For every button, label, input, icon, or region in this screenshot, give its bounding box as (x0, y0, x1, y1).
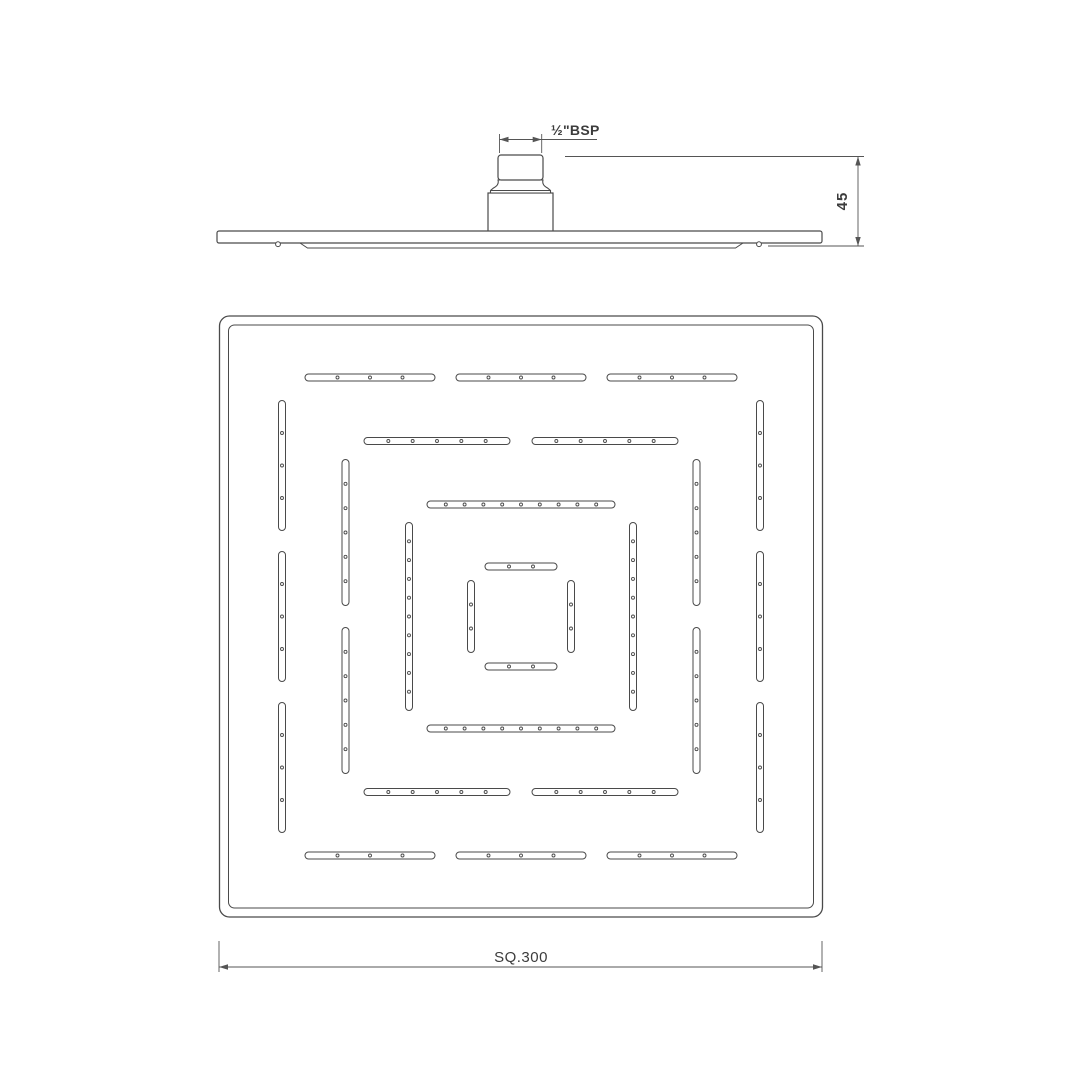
nozzle-hole (408, 540, 411, 543)
nozzle-hole (281, 583, 284, 586)
nozzle-hole (484, 791, 487, 794)
plate-outline (217, 231, 822, 243)
nozzle-hole (281, 497, 284, 500)
nozzle-hole (344, 675, 347, 678)
nozzle-hole (344, 507, 347, 510)
nozzle-hole (336, 854, 339, 857)
drawing-sheet: ½"BSP 45 SQ.300 (0, 0, 1080, 1080)
nozzle-hole (401, 376, 404, 379)
nozzle-hole (638, 376, 641, 379)
nozzle-hole (344, 555, 347, 558)
nozzle-hole (482, 727, 485, 730)
nozzle-hole (632, 690, 635, 693)
nozzle-hole (695, 723, 698, 726)
nozzle-hole (652, 440, 655, 443)
nozzle-hole (759, 734, 762, 737)
nozzle-hole (369, 854, 372, 857)
nozzle-hole (538, 503, 541, 506)
nozzle-slot (568, 581, 575, 653)
sq-arrow-left (219, 964, 228, 969)
nozzle-hole (501, 503, 504, 506)
nozzle-hole (281, 734, 284, 737)
nozzle-hole (520, 503, 523, 506)
nozzle-hole (408, 615, 411, 618)
nozzle-hole (408, 559, 411, 562)
nozzle-hole (595, 503, 598, 506)
technical-drawing: ½"BSP 45 SQ.300 (0, 0, 1080, 1080)
nozzle-hole (387, 791, 390, 794)
nozzle-hole (470, 603, 473, 606)
nozzle-hole (703, 854, 706, 857)
nozzle-hole (508, 665, 511, 668)
nozzle-hole (759, 432, 762, 435)
nozzle-hole (632, 653, 635, 656)
nozzle-hole (576, 727, 579, 730)
nozzle-hole (628, 440, 631, 443)
nozzle-hole (281, 766, 284, 769)
nozzle-hole (344, 650, 347, 653)
face-recess-lip (300, 243, 743, 248)
height-arrow-top (855, 157, 860, 166)
nozzle-hole (487, 854, 490, 857)
bsp-dimension-label: ½"BSP (551, 122, 600, 138)
nozzle-hole (281, 648, 284, 651)
nozzle-hole (759, 464, 762, 467)
nozzle-hole (695, 675, 698, 678)
plan-view-linework (220, 316, 823, 917)
nozzle-hole (436, 791, 439, 794)
nozzle-hole (408, 596, 411, 599)
nozzle-hole (408, 634, 411, 637)
nozzle-hole (408, 577, 411, 580)
sq-arrow-right (813, 964, 822, 969)
nozzle-hole (538, 727, 541, 730)
nozzle-slot (468, 581, 475, 653)
bsp-arrow-left (500, 137, 509, 142)
nozzle-hole (759, 766, 762, 769)
nozzle-hole (632, 559, 635, 562)
nozzle-slot (485, 663, 557, 670)
nozzle-hole (387, 440, 390, 443)
nozzle-hole (281, 464, 284, 467)
nozzle-hole (460, 440, 463, 443)
side-view-linework (217, 155, 822, 248)
nozzle-hole (344, 748, 347, 751)
nozzle-hole (570, 627, 573, 630)
nozzle-hole (695, 580, 698, 583)
nozzle-hole (652, 791, 655, 794)
nozzle-hole (632, 577, 635, 580)
nozzle-hole (501, 727, 504, 730)
nozzle-hole (487, 376, 490, 379)
nozzle-hole (695, 482, 698, 485)
nozzle-hole (632, 671, 635, 674)
connector-nipple (498, 155, 543, 180)
nozzle-hole (759, 583, 762, 586)
nozzle-hole (436, 440, 439, 443)
nozzle-hole (671, 376, 674, 379)
nozzle-hole (484, 440, 487, 443)
nozzle-hole (604, 440, 607, 443)
height-arrow-bottom (855, 237, 860, 246)
nozzle-hole (632, 596, 635, 599)
nozzle-hole (470, 627, 473, 630)
nozzle-hole (555, 440, 558, 443)
nozzle-hole (508, 565, 511, 568)
nozzle-hole (576, 503, 579, 506)
nozzle-hole (408, 653, 411, 656)
nozzle-hole (520, 854, 523, 857)
nozzle-hole (344, 482, 347, 485)
nozzle-hole (344, 531, 347, 534)
nozzle-slot (485, 563, 557, 570)
nozzle-hole (604, 791, 607, 794)
nozzle-hole (532, 565, 535, 568)
nozzle-hole (695, 555, 698, 558)
nozzle-dot (757, 242, 762, 247)
nozzle-hole (411, 791, 414, 794)
nozzle-hole (344, 723, 347, 726)
nozzle-hole (759, 648, 762, 651)
nozzle-hole (695, 650, 698, 653)
nozzle-hole (460, 791, 463, 794)
nozzle-hole (344, 699, 347, 702)
nozzle-hole (579, 440, 582, 443)
nozzle-hole (369, 376, 372, 379)
square-size-dimension-label: SQ.300 (494, 949, 548, 966)
nozzle-hole (463, 503, 466, 506)
nozzle-hole (520, 376, 523, 379)
nozzle-hole (463, 727, 466, 730)
nozzle-hole (595, 727, 598, 730)
nozzle-hole (759, 799, 762, 802)
bsp-arrow-right (533, 137, 542, 142)
connector-base (488, 193, 553, 233)
nozzle-hole (695, 507, 698, 510)
nozzle-hole (336, 376, 339, 379)
nozzle-hole (411, 440, 414, 443)
nozzle-hole (703, 376, 706, 379)
nozzle-hole (671, 854, 674, 857)
nozzle-hole (408, 671, 411, 674)
nozzle-hole (579, 791, 582, 794)
nozzle-hole (632, 634, 635, 637)
nozzle-hole (759, 497, 762, 500)
nozzle-hole (344, 580, 347, 583)
nozzle-hole (482, 503, 485, 506)
nozzle-hole (638, 854, 641, 857)
nozzle-dot (276, 242, 281, 247)
nozzle-hole (552, 376, 555, 379)
nozzle-hole (444, 503, 447, 506)
nozzle-hole (281, 799, 284, 802)
nozzle-hole (555, 791, 558, 794)
nozzle-hole (632, 615, 635, 618)
nozzle-hole (632, 540, 635, 543)
nozzle-hole (552, 854, 555, 857)
height-dimension-label: 45 (834, 192, 851, 211)
nozzle-hole (520, 727, 523, 730)
nozzle-hole (444, 727, 447, 730)
connector-neck (491, 180, 551, 193)
nozzle-hole (628, 791, 631, 794)
nozzle-hole (695, 699, 698, 702)
nozzle-hole (557, 503, 560, 506)
nozzle-hole (695, 748, 698, 751)
nozzle-hole (759, 615, 762, 618)
nozzle-hole (281, 615, 284, 618)
nozzle-hole (532, 665, 535, 668)
nozzle-hole (570, 603, 573, 606)
face-outer-edge (220, 316, 823, 917)
nozzle-hole (408, 690, 411, 693)
nozzle-hole (401, 854, 404, 857)
nozzle-hole (557, 727, 560, 730)
nozzle-hole (695, 531, 698, 534)
nozzle-hole (281, 432, 284, 435)
